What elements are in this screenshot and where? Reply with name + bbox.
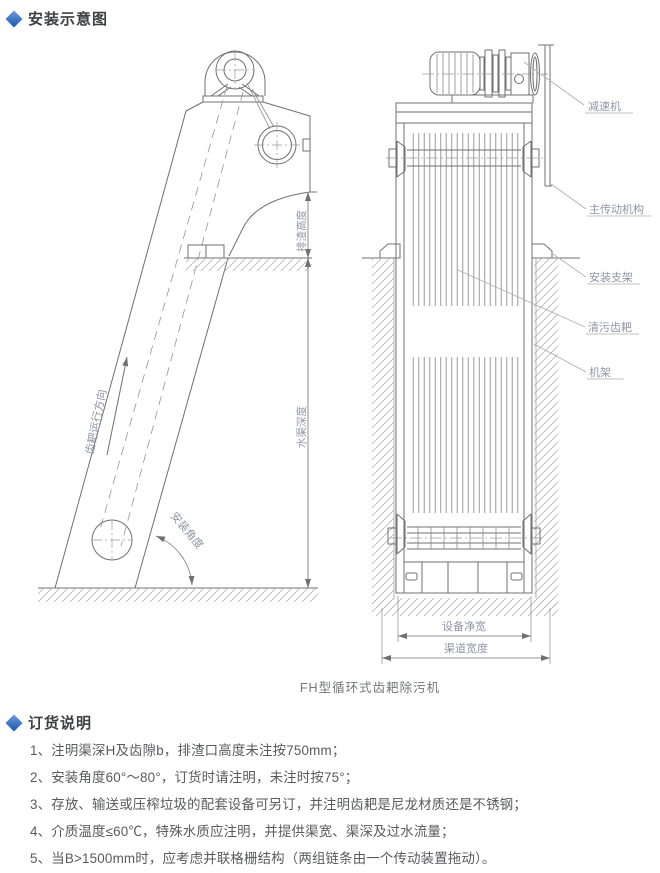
- main-drive-label: 主传动机构: [589, 202, 644, 216]
- catalog-page: 安装示意图: [0, 0, 660, 873]
- install-angle-label: 安装角度: [168, 509, 207, 552]
- mount-bracket-label: 安装支架: [589, 270, 633, 284]
- side-view-drawing: 齿耙运行方向 安装角度 排渣高度 水渠深度: [38, 51, 318, 602]
- rake-direction-arrow: [107, 356, 130, 455]
- cleaning-rake-label: 清污齿耙: [588, 321, 632, 334]
- head-pulley-drawing: [203, 51, 274, 129]
- discharge-platform-drawing: [184, 245, 312, 271]
- ordering-section-header: 订货说明: [8, 712, 92, 733]
- screen-bars-drawing: [410, 133, 520, 513]
- ordering-item-3: 3、存放、输送或压榨垃圾的配套设备可另订，并注明齿耙是尼龙材质还是不锈钢；: [30, 791, 650, 818]
- channel-width-label: 渠道宽度: [444, 641, 488, 655]
- discharge-height-label: 排渣高度: [295, 210, 308, 252]
- diagram-caption: FH型循环式齿耙除污机: [80, 677, 660, 696]
- ordering-title: 订货说明: [28, 712, 92, 733]
- ordering-item-5: 5、当B>1500mm时，应考虑并联格栅结构（两组链条由一个传动装置拖动）。: [30, 845, 650, 872]
- reducer-label: 减速机: [588, 99, 621, 113]
- bottom-shaft-drawing: [388, 514, 542, 554]
- ordering-item-1: 1、注明渠深H及齿隙b，排渣口高度未注按750mm；: [30, 737, 650, 764]
- channel-depth-label: 水渠深度: [295, 406, 308, 448]
- ordering-item-2: 2、安装角度60°～80°，订货时请注明，未注时按75°；: [30, 764, 650, 791]
- equip-width-label: 设备净宽: [442, 619, 486, 633]
- front-view-drawing: 设备净宽 渠道宽度: [362, 45, 580, 664]
- bottom-box-drawing: [404, 562, 524, 593]
- rake-direction-label: 齿耙运行方向: [82, 388, 109, 455]
- ordering-item-4: 4、介质温度≤60℃，特殊水质应注明，并提供渠宽、渠深及过水流量；: [30, 818, 650, 845]
- diamond-icon: [6, 714, 23, 731]
- installation-diagram: 齿耙运行方向 安装角度 排渣高度 水渠深度: [0, 0, 660, 700]
- head-body-drawing: [186, 102, 310, 256]
- inclined-frame-drawing: [55, 86, 243, 588]
- ground-line-drawing: [38, 588, 318, 602]
- machine-frame-label: 机架: [589, 365, 611, 379]
- ordering-items-list: 1、注明渠深H及齿隙b，排渣口高度未注按750mm； 2、安装角度60°～80°…: [30, 737, 650, 872]
